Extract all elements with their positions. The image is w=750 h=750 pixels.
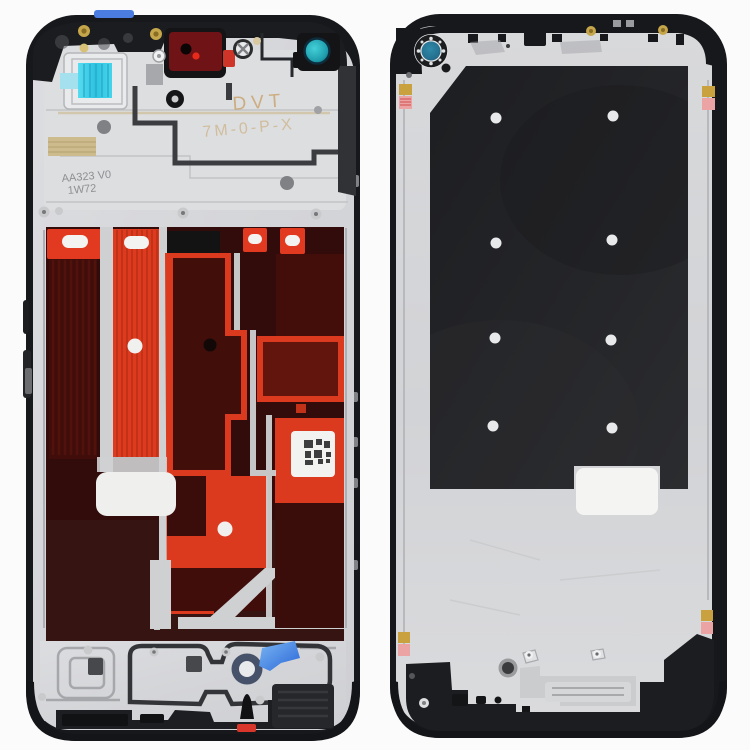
svg-text:1W72: 1W72 (67, 183, 97, 197)
svg-text:DVT: DVT (232, 90, 286, 115)
